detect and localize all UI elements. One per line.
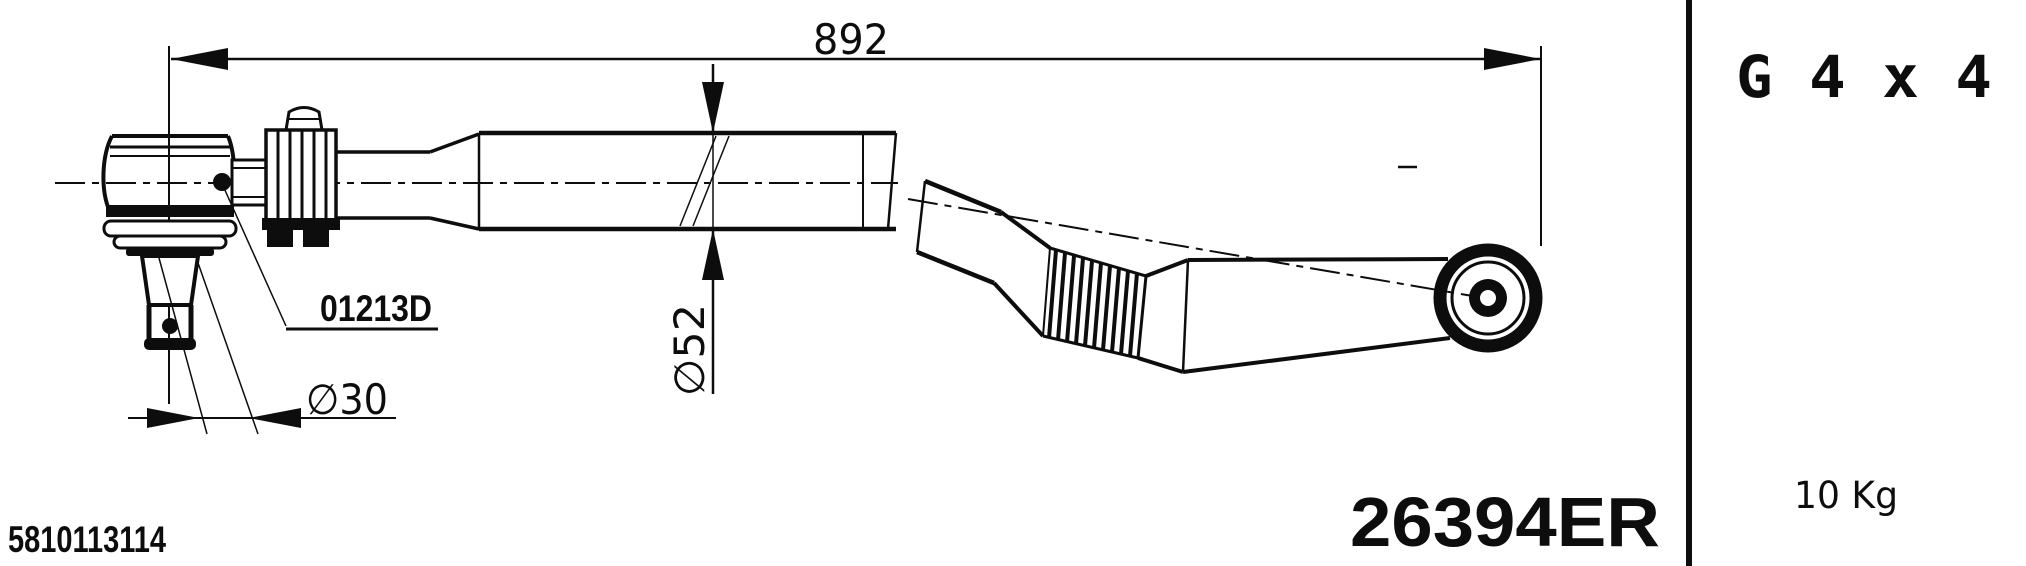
dim-overall-length-value: 892 [813, 15, 889, 64]
tie-rod-technical-drawing: 892 ∅52 [0, 0, 2026, 566]
dim-arrow-right [1484, 48, 1541, 70]
catalog-drawing-sheet: 892 ∅52 [0, 0, 2026, 566]
clamp-foot-right [303, 230, 329, 247]
boot-ring-2 [114, 236, 226, 248]
boot-ring-1 [104, 221, 236, 236]
drawing-number: 5810113114 [8, 519, 166, 560]
dimension-overall-length: 892 [169, 15, 1541, 404]
thread-spec: G 4 x 4 [1736, 43, 1992, 111]
neck [232, 160, 266, 205]
side-panel: G 4 x 4 10 Kg [1686, 0, 1992, 566]
dim-rod-diameter-value: ∅52 [665, 304, 714, 396]
panel-divider [1686, 0, 1692, 566]
tube-break-end [888, 133, 896, 229]
tube-break-start [917, 181, 925, 252]
ball-joint-ref-value: 01213D [320, 288, 432, 329]
clamp-foot-left [267, 230, 293, 247]
rod-tube-front [336, 133, 896, 230]
eye-end [1138, 250, 1536, 372]
eye-hub-hole [1480, 290, 1496, 306]
dim-arrow-inward-left [147, 408, 199, 428]
weight-value: 10 Kg [1794, 474, 1898, 517]
ball-joint-end [103, 136, 266, 350]
clamp-base-band [262, 218, 340, 230]
dim-arrow-down [702, 82, 724, 133]
dim-arrow-left [171, 48, 228, 70]
housing-lower-band [106, 205, 234, 217]
castle-nut-base [144, 338, 196, 350]
dim-arrow-inward-right [249, 408, 301, 428]
clamp-section [262, 108, 340, 248]
corrugated-section [1043, 248, 1146, 358]
grease-point [213, 173, 231, 191]
dim-stud-diameter-value: ∅30 [306, 375, 388, 424]
part-number: 26394ER [1350, 483, 1660, 561]
